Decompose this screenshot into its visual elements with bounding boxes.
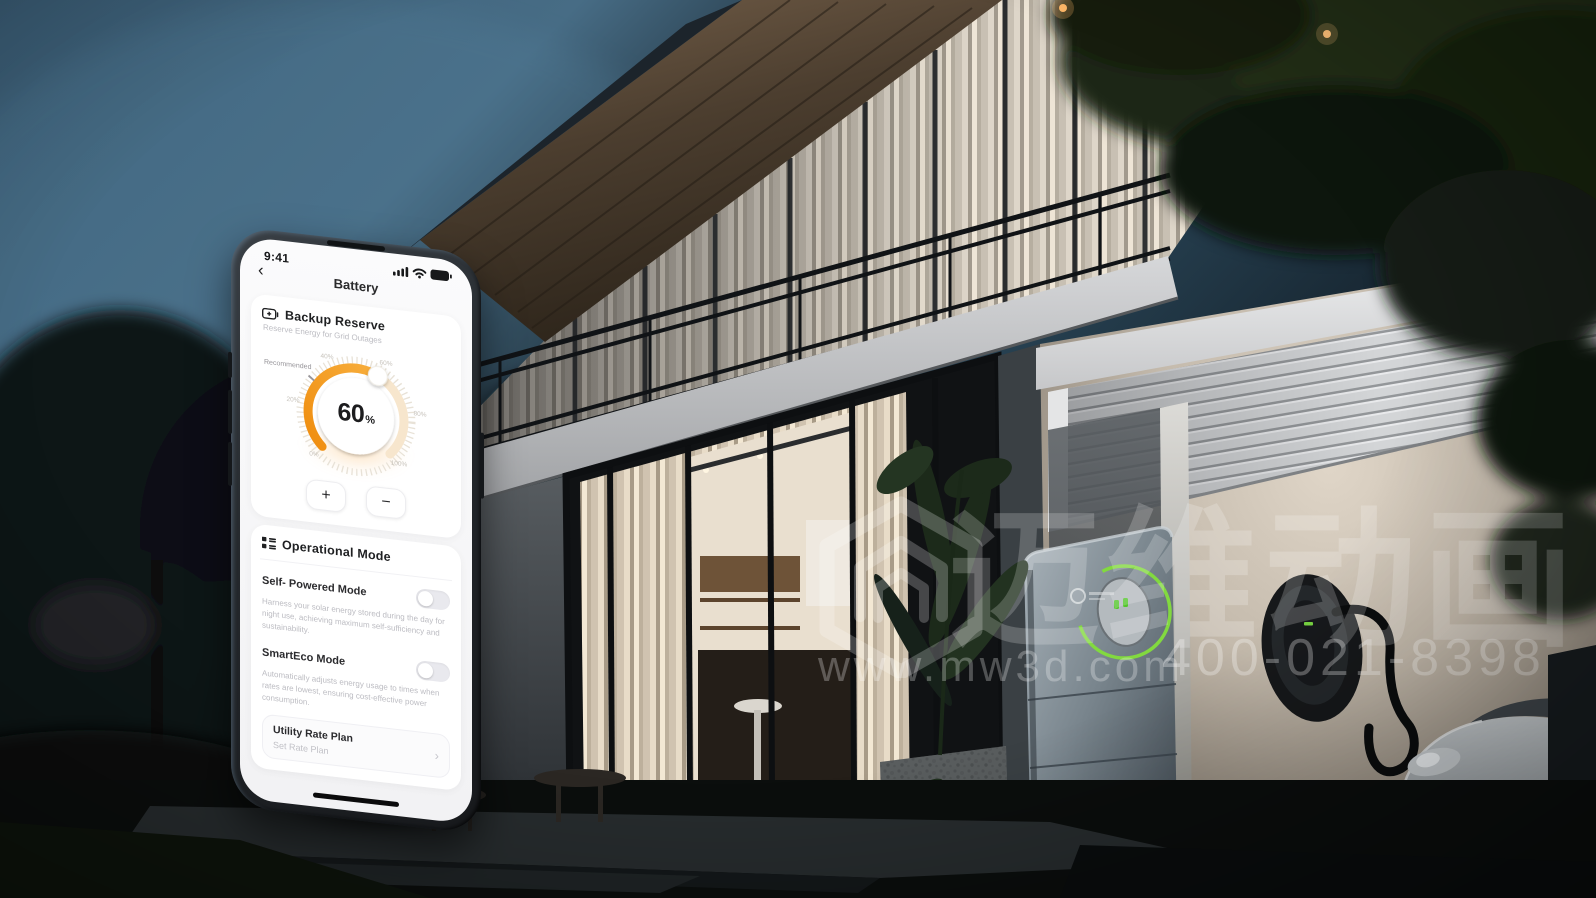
- smarteco-mode-label: SmartEco Mode: [262, 646, 345, 667]
- operational-mode-card: Operational Mode Self- Powered Mode Harn…: [251, 523, 461, 791]
- smartphone: 9:41: [231, 226, 481, 834]
- mute-switch[interactable]: [228, 352, 232, 378]
- battery-status-icon: [430, 269, 452, 283]
- signal-icon: [393, 264, 409, 277]
- backup-reserve-card: Backup Reserve Reserve Energy for Grid O…: [251, 293, 461, 539]
- toggle-knob: [418, 590, 433, 607]
- chevron-right-icon: ›: [435, 748, 439, 763]
- tick-label-40: 40%: [320, 353, 333, 361]
- self-powered-mode-toggle[interactable]: [416, 588, 450, 611]
- smarteco-mode-toggle[interactable]: [416, 660, 450, 683]
- stage: 迈维动画 www.mw3d.com 400-021-8398 9:41: [0, 0, 1596, 898]
- power-button[interactable]: [480, 432, 484, 498]
- volume-up-button[interactable]: [228, 390, 232, 434]
- wifi-icon: [412, 267, 427, 280]
- utility-rate-plan-row[interactable]: Utility Rate Plan Set Rate Plan ›: [262, 714, 450, 779]
- self-powered-mode-label: Self- Powered Mode: [262, 574, 367, 598]
- reserve-dial: 60% 0% 20% 40% 60% 80% 100% Recommended: [264, 342, 448, 489]
- battery-icon: [262, 307, 279, 320]
- tick-label-60: 60%: [379, 359, 392, 367]
- home-indicator[interactable]: [313, 792, 399, 807]
- operational-mode-title: Operational Mode: [282, 538, 391, 564]
- list-grid-icon: [262, 537, 276, 551]
- tick-label-80: 80%: [413, 410, 426, 418]
- mw3d-logo: [812, 496, 990, 678]
- back-button[interactable]: ‹: [254, 260, 268, 282]
- reserve-value: 60%: [337, 398, 374, 431]
- toggle-knob: [418, 662, 433, 679]
- increase-button[interactable]: +: [306, 479, 346, 514]
- decrease-button[interactable]: −: [366, 485, 406, 520]
- volume-down-button[interactable]: [228, 442, 232, 486]
- tick-label-0: 0%: [309, 450, 318, 458]
- tick-label-20: 20%: [286, 396, 299, 404]
- app-screen: 9:41: [240, 236, 472, 824]
